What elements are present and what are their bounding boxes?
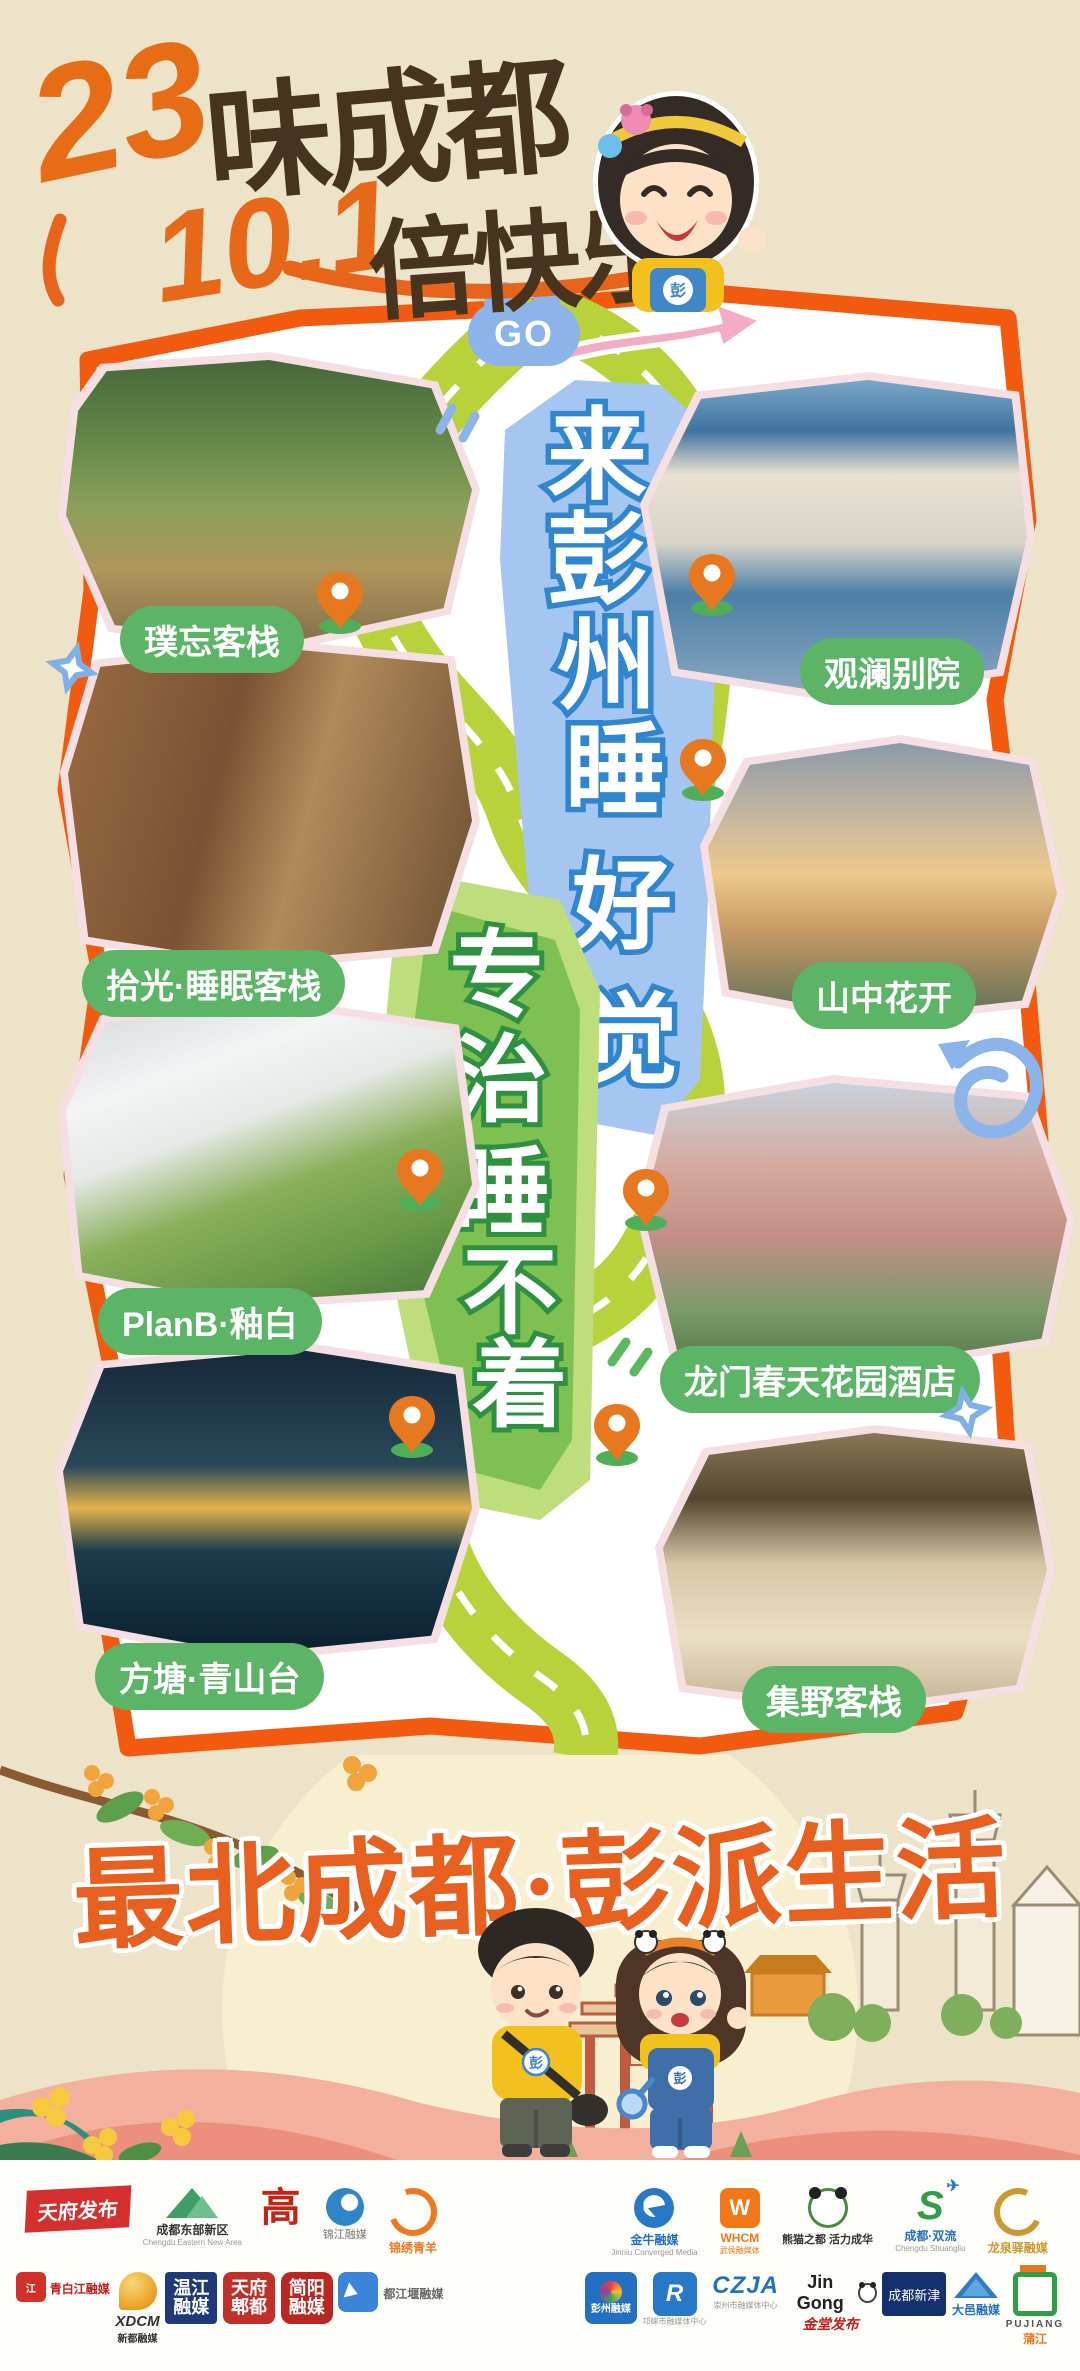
footer-logo-jintang: Jin Gong 金堂发布 bbox=[785, 2272, 877, 2334]
headband bbox=[608, 122, 744, 142]
label-guanlan-villa: 观澜别院 bbox=[800, 638, 984, 705]
svg-text:着: 着 bbox=[472, 1333, 567, 1439]
footer-logo-dujiangyan: 都江堰融媒 bbox=[338, 2272, 443, 2312]
clip-blue bbox=[598, 134, 622, 158]
footer-logo-jinniu: 金牛融媒 Jinniu Converged Media bbox=[611, 2188, 697, 2257]
footer-logo-qingbaijiang: 江 青白江融媒 bbox=[16, 2272, 110, 2302]
svg-text:彭: 彭 bbox=[673, 2071, 686, 2086]
girl-pants bbox=[650, 2108, 712, 2150]
gold-swirl-icon bbox=[987, 2181, 1049, 2243]
loop-arrowhead bbox=[938, 1040, 970, 1070]
poster: 23 味成都 10.1 倍快乐 彭 bbox=[0, 0, 1080, 2371]
footer-logo-dongbuxinqu: 成都东部新区 Chengdu Eastern New Area bbox=[146, 2188, 238, 2247]
mascot-girl-bottom: 彭 bbox=[616, 1930, 749, 2158]
paifang-archway bbox=[570, 1985, 730, 2156]
footer-logo-chongzhou: CZJA 崇州市融媒体中心 bbox=[712, 2272, 779, 2311]
svg-text:睡: 睡 bbox=[565, 715, 665, 827]
girl-raised-hand bbox=[727, 2007, 749, 2029]
hill-back bbox=[0, 2069, 1080, 2165]
qingbaijiang-icon: 江 bbox=[16, 2272, 46, 2302]
label-shanzhong-huakai: 山中花开 bbox=[792, 962, 976, 1029]
girl-overalls bbox=[648, 2048, 714, 2110]
pujiang-spiral-icon bbox=[1013, 2272, 1057, 2316]
label-shiguang-sleep-inn: 拾光·睡眠客栈 bbox=[82, 950, 345, 1017]
magnifier-icon bbox=[619, 2091, 645, 2117]
footer-logo-longquanyi: 龙泉驿融媒 bbox=[988, 2188, 1048, 2256]
girl-hand-raised bbox=[738, 226, 766, 254]
footer-logo-xinjin: 成都新津 bbox=[882, 2272, 946, 2316]
yellow-flowers bbox=[32, 2087, 195, 2164]
label-puwang-inn: 璞忘客栈 bbox=[120, 606, 304, 673]
girl-open-mouth bbox=[671, 2013, 689, 2027]
svg-text:好: 好 bbox=[571, 850, 672, 962]
photo-fangtang-qingshantai bbox=[55, 1342, 480, 1662]
footer-row-2: 江 青白江融媒 XDCM 新都融媒 温江融媒 天府郫都 简阳融媒 bbox=[10, 2272, 1070, 2347]
jianyang-icon: 简阳融媒 bbox=[281, 2272, 333, 2324]
label-fangtang-qingshantai: 方塘·青山台 bbox=[95, 1643, 324, 1710]
czja-letters: CZJA bbox=[712, 2272, 779, 2300]
girl-tee bbox=[640, 2034, 720, 2070]
label-jiye-inn: 集野客栈 bbox=[742, 1666, 926, 1733]
footer-logo-qingyang: 锦绣青羊 bbox=[389, 2188, 437, 2256]
svg-text:彭: 彭 bbox=[547, 505, 647, 617]
blue-swirl-icon bbox=[326, 2188, 364, 2226]
orange-swirl-icon bbox=[381, 2180, 445, 2244]
map-pin bbox=[594, 1404, 640, 1466]
footer-logo-qionglai: R 邛崃市融媒体中心 bbox=[643, 2272, 707, 2327]
label-longmen-spring-garden-hotel: 龙门春天花园酒店 bbox=[660, 1346, 980, 1413]
campaign-text-beikuaile: 倍快乐 bbox=[363, 165, 685, 342]
footer-logo-jianyang: 简阳融媒 bbox=[281, 2272, 333, 2324]
shuangliu-s-icon: S✈ bbox=[917, 2188, 944, 2224]
pidu-seal-icon: 天府郫都 bbox=[223, 2272, 275, 2324]
dayi-mountain-icon bbox=[954, 2272, 998, 2298]
footer-logo-dayi: 大邑融媒 bbox=[952, 2272, 1000, 2318]
label-planb-youbai: PlanB·釉白 bbox=[98, 1288, 322, 1355]
svg-text:来: 来 bbox=[547, 400, 647, 512]
photo-longmen-spring-garden-hotel bbox=[635, 1075, 1075, 1375]
footer-logo-shuangliu: S✈ 成都·双流 Chengdu Shuangliu bbox=[895, 2188, 965, 2253]
panda-clip-pink bbox=[621, 105, 651, 135]
bag-strap bbox=[504, 2034, 578, 2096]
footer-logo-tianfufabu: 天府发布 bbox=[32, 2188, 124, 2230]
footer-logo-pidu: 天府郫都 bbox=[223, 2272, 275, 2324]
hill-front bbox=[0, 2122, 1080, 2165]
footer-row-1: 天府发布 成都东部新区 Chengdu Eastern New Area 高 锦… bbox=[10, 2188, 1070, 2257]
boy-pants bbox=[500, 2098, 572, 2148]
pengzhou-icon: 彭州融媒 bbox=[585, 2272, 637, 2324]
footer-logo-xindu: XDCM 新都融媒 bbox=[115, 2272, 159, 2345]
archway-plaque bbox=[630, 2043, 670, 2065]
slogan: 最北成都·彭派生活 bbox=[70, 1779, 1010, 1972]
closed-eye-right bbox=[690, 188, 710, 194]
footer-media-logos: 天府发布 成都东部新区 Chengdu Eastern New Area 高 锦… bbox=[0, 2160, 1080, 2371]
boy-shirt bbox=[492, 2026, 582, 2100]
pavilion bbox=[752, 1973, 824, 2015]
whcm-icon: W bbox=[720, 2188, 760, 2228]
panda-icon bbox=[808, 2188, 848, 2228]
gold-ball-icon bbox=[119, 2272, 157, 2310]
svg-text:彭: 彭 bbox=[529, 2055, 543, 2071]
footer-logo-jinjiang: 锦江融媒 bbox=[323, 2188, 367, 2242]
teal-wave bbox=[0, 2109, 150, 2165]
footer-logo-pengzhou: 彭州融媒 bbox=[585, 2272, 637, 2324]
calligraphy-icon: 高 bbox=[261, 2188, 301, 2228]
photo-planb-youbai bbox=[58, 1000, 480, 1310]
jinniu-wave-icon bbox=[634, 2188, 674, 2228]
wenjiang-icon: 温江融媒 bbox=[165, 2272, 217, 2324]
mountain-icon bbox=[166, 2188, 218, 2218]
qionglai-icon: R bbox=[653, 2272, 697, 2316]
jingong-icon: Jin Gong bbox=[785, 2272, 877, 2314]
footer-logo-chenghua: 熊猫之都 活力成华 bbox=[782, 2188, 873, 2247]
footer-logo-wenjiang: 温江融媒 bbox=[165, 2272, 217, 2324]
xinjin-icon: 成都新津 bbox=[882, 2272, 946, 2316]
messenger-bag bbox=[568, 2094, 608, 2126]
dujiangyan-wave-icon bbox=[338, 2272, 378, 2312]
tianfufabu-icon: 天府发布 bbox=[25, 2185, 132, 2232]
bushes bbox=[808, 1993, 1022, 2042]
photo-shiguang-sleep-inn bbox=[60, 640, 480, 970]
footer-logo-pujiang: PUJIANG 蒲江 bbox=[1006, 2272, 1064, 2347]
footer-logo-gaoxin: 高 bbox=[261, 2188, 301, 2228]
footer-logo-whcm: W WHCM 武侯融媒体 bbox=[720, 2188, 760, 2256]
